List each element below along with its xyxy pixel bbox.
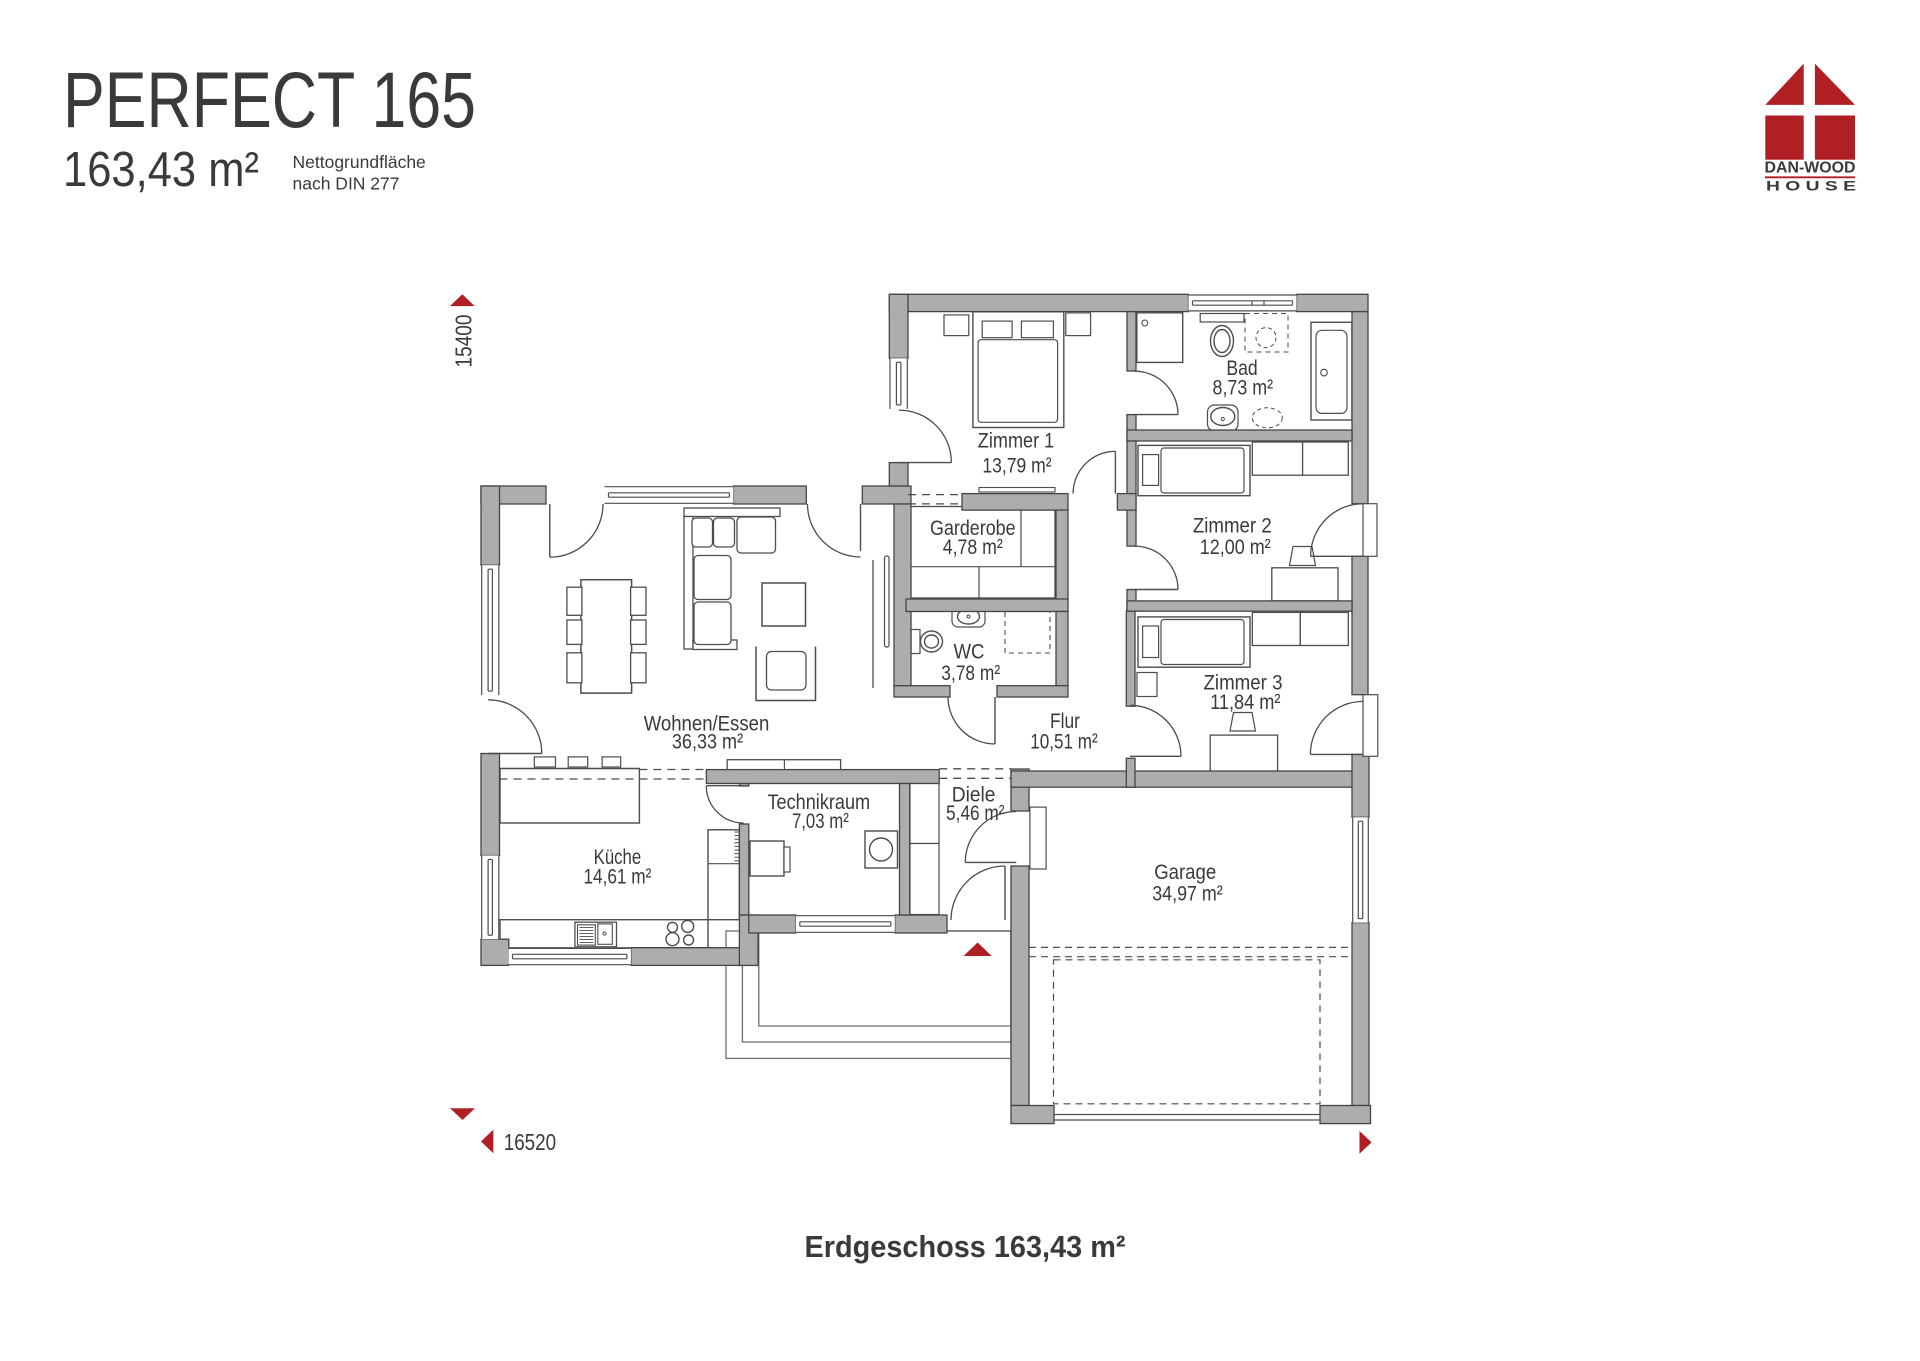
svg-text:34,97 m²: 34,97 m²	[1152, 882, 1223, 906]
svg-text:163,43 m²: 163,43 m²	[63, 143, 259, 197]
svg-text:Zimmer 2: Zimmer 2	[1193, 513, 1272, 537]
svg-text:Erdgeschoss 163,43 m²: Erdgeschoss 163,43 m²	[805, 1229, 1126, 1264]
svg-text:4,78 m²: 4,78 m²	[943, 535, 1003, 559]
svg-text:16520: 16520	[504, 1129, 557, 1155]
svg-text:nach DIN 277: nach DIN 277	[293, 174, 400, 194]
svg-text:36,33 m²: 36,33 m²	[672, 730, 743, 754]
svg-text:10,51 m²: 10,51 m²	[1030, 729, 1098, 753]
svg-text:5,46 m²: 5,46 m²	[946, 801, 1005, 825]
svg-text:H O U S E: H O U S E	[1766, 179, 1856, 194]
svg-text:12,00 m²: 12,00 m²	[1200, 535, 1271, 559]
svg-text:8,73 m²: 8,73 m²	[1213, 376, 1274, 400]
svg-text:15400: 15400	[451, 315, 477, 368]
svg-text:DAN-WOOD: DAN-WOOD	[1765, 160, 1856, 177]
svg-text:Zimmer 1: Zimmer 1	[978, 429, 1054, 453]
svg-text:14,61 m²: 14,61 m²	[583, 865, 651, 889]
svg-text:13,79 m²: 13,79 m²	[982, 454, 1051, 478]
svg-text:7,03 m²: 7,03 m²	[792, 809, 849, 833]
svg-text:Nettogrundfläche: Nettogrundfläche	[293, 152, 426, 172]
svg-text:Garage: Garage	[1154, 860, 1216, 884]
svg-text:11,84 m²: 11,84 m²	[1210, 690, 1280, 714]
svg-text:PERFECT 165: PERFECT 165	[63, 55, 476, 144]
svg-text:3,78 m²: 3,78 m²	[941, 661, 1000, 685]
